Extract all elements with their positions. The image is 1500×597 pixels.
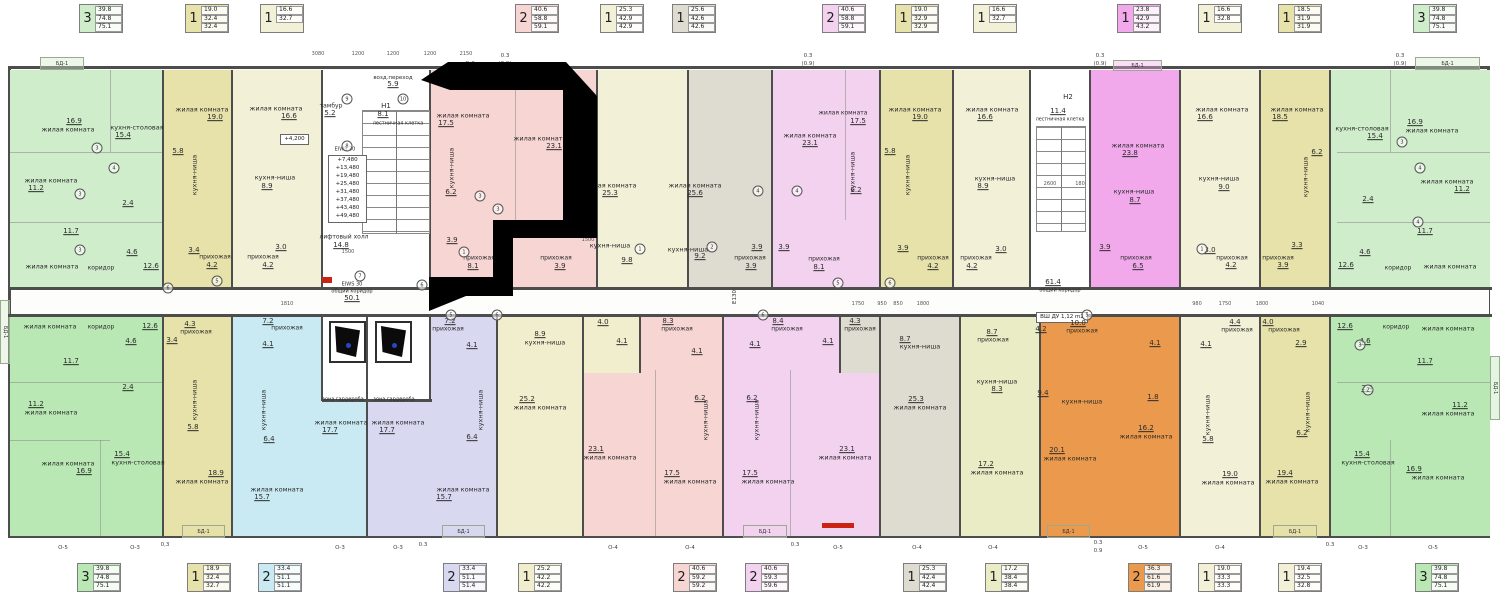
legend-room-count: 1: [519, 564, 534, 591]
room-label: кухня-ниша: [1304, 392, 1311, 433]
legend-area-value: 32.7: [203, 582, 230, 591]
offset-tag: (0.9): [801, 61, 814, 67]
opening-tag: О-3: [335, 545, 345, 551]
legend-area-value: 42.9: [616, 23, 643, 32]
opening-tag: О-3: [1358, 545, 1368, 551]
stair-flight-icon: [1036, 126, 1086, 232]
area-value: 5.8: [1202, 436, 1213, 444]
balcony: БД-1: [743, 525, 787, 538]
legend-area-value: 38.4: [1001, 574, 1028, 583]
area-value: 16.6: [281, 113, 297, 121]
area-value: 3.9: [745, 263, 756, 271]
keynote-circle: 4: [1413, 217, 1424, 228]
room-label: жилая комната: [1423, 263, 1476, 270]
partition-wall: [655, 370, 656, 536]
legend-area-value: 40.6: [838, 6, 865, 15]
area-value: 4.0: [1262, 319, 1273, 327]
area-value: 11.7: [63, 228, 79, 236]
balcony: БД-1: [1490, 356, 1500, 420]
area-value: 15.7: [436, 494, 452, 502]
keynote-circle: 3: [75, 245, 86, 256]
legend-area-value: 58.8: [531, 15, 558, 24]
wall: [231, 70, 233, 290]
legend-area-value: 32.9: [911, 15, 938, 24]
room-label: жилая комната: [663, 478, 716, 485]
room-label: жилая комната: [1043, 455, 1096, 462]
legend-areas: 33.451.151.1: [274, 564, 301, 591]
opening-tag: О-5: [58, 545, 68, 551]
keynote-circle: 8: [342, 141, 353, 152]
legend-areas: 39.874.875.1: [1431, 564, 1458, 591]
area-value: 4.2: [927, 263, 938, 271]
room-label: зона гардероба: [373, 397, 414, 403]
legend-area-value: 19.0: [1214, 565, 1241, 574]
legend-room-count: 2: [259, 564, 274, 591]
room-label: общий коридор: [1039, 288, 1080, 294]
keynote-circle: 5: [833, 278, 844, 289]
area-value: 4.1: [616, 338, 627, 346]
legend-area-value: 19.0: [911, 6, 938, 15]
legend-area-value: 16.6: [1214, 6, 1241, 15]
legend-area-value: 51.4: [459, 582, 486, 591]
area-value: 1.8: [1147, 394, 1158, 402]
offset-tag: 0.3: [419, 542, 428, 548]
legend-room-count: 2: [516, 5, 531, 32]
room-label: кухня-ниша: [590, 242, 631, 249]
balcony: БД-1: [1415, 57, 1480, 70]
legend-areas: 19.032.432.4: [201, 5, 228, 32]
area-value: 4.4: [1229, 319, 1240, 327]
opening-tag: О-4: [608, 545, 618, 551]
area-value: 8.7: [1129, 197, 1140, 205]
area-value: 2.4: [122, 200, 133, 208]
legend-area-value: 38.4: [1001, 582, 1028, 591]
area-value: 6.2: [1311, 149, 1322, 157]
wall: [231, 316, 233, 536]
legend-area-value: 25.3: [919, 565, 946, 574]
wall: [582, 316, 584, 536]
room-label: жилая комната: [1265, 478, 1318, 485]
legend-unit-1-room: 116.632.7: [260, 4, 304, 33]
partition-wall: [10, 152, 163, 153]
legend-area-value: 59.1: [531, 23, 558, 32]
area-value: 5.9: [387, 81, 398, 89]
legend-room-count: 1: [1199, 564, 1214, 591]
area-value: 4.3: [184, 321, 195, 329]
area-value: 6.2: [746, 395, 757, 403]
area-value: 19.0: [207, 114, 223, 122]
legend-areas: 19.033.333.3: [1214, 564, 1241, 591]
apartment-b10: [960, 317, 1040, 536]
opening-tag: О-4: [1215, 545, 1225, 551]
area-value: 12.6: [142, 323, 158, 331]
wall: [879, 316, 881, 536]
legend-area-value: 42.9: [1133, 15, 1160, 24]
legend-areas: 19.432.532.8: [1294, 564, 1321, 591]
area-value: 15.4: [115, 132, 131, 140]
legend-area-value: 32.4: [201, 15, 228, 24]
area-value: 6.4: [263, 436, 274, 444]
elevator-icon: [375, 321, 412, 363]
area-value: 15.4: [1367, 133, 1383, 141]
partition-wall: [515, 90, 516, 220]
area-value: 4.1: [262, 341, 273, 349]
legend-room-count: 1: [673, 5, 688, 32]
legend-unit-2-room: 240.659.359.6: [745, 563, 789, 592]
legend-areas: 40.658.859.1: [531, 5, 558, 32]
room-label: прихожая: [271, 326, 303, 333]
area-value: 4.1: [466, 342, 477, 350]
balcony: БД-1: [182, 525, 225, 538]
legend-areas: 16.632.7: [276, 5, 303, 32]
legend-area-value: 42.4: [919, 582, 946, 591]
legend-areas: 18.531.931.9: [1294, 5, 1321, 32]
area-value: 4.2: [1225, 262, 1236, 270]
room-label: прихожая: [180, 330, 212, 337]
legend-area-value: 51.1: [274, 574, 301, 583]
area-value: 4.6: [126, 249, 137, 257]
dim-label: 1200: [352, 51, 365, 57]
legend-area-value: 42.4: [919, 574, 946, 583]
area-value: 17.5: [438, 120, 454, 128]
apartment-b6: [497, 317, 583, 536]
room-label: жилая комната: [41, 126, 94, 133]
dim-label: 3080: [312, 51, 325, 57]
keynote-circle: 3: [92, 143, 103, 154]
area-value: 11.7: [1417, 228, 1433, 236]
area-value: 3.3: [1291, 242, 1302, 250]
offset-tag: (0.9): [1393, 61, 1406, 67]
legend-area-value: 59.1: [838, 23, 865, 32]
keynote-circle: 3: [75, 189, 86, 200]
room-label: EIWS 30: [342, 282, 363, 288]
offset-tag: 0.3: [1326, 542, 1335, 548]
legend-areas: 39.874.875.1: [1429, 5, 1456, 32]
legend-area-value: 16.6: [276, 6, 303, 15]
area-value: 23.1: [802, 140, 818, 148]
room-label: кухня-ниша: [1062, 398, 1103, 405]
area-value: 9.2: [694, 253, 705, 261]
legend-areas: 19.032.932.9: [911, 5, 938, 32]
offset-tag: (0.9): [498, 61, 511, 67]
room-label: жилая комната: [1119, 433, 1172, 440]
legend-room-count: 1: [601, 5, 616, 32]
legend-unit-1-room: 123.842.943.2: [1117, 4, 1161, 33]
area-value: 18.5: [1272, 114, 1288, 122]
legend-area-value: 61.6: [1144, 574, 1171, 583]
offset-tag: 0,3: [161, 542, 170, 548]
keynote-circle: 1: [1197, 244, 1208, 255]
area-value: 5.2: [324, 110, 335, 118]
room-label: коридор: [1385, 266, 1412, 273]
area-value: 8.9: [977, 183, 988, 191]
keynote-circle: 6: [885, 278, 896, 289]
area-value: 25.3: [602, 190, 618, 198]
area-value: 2.9: [1295, 340, 1306, 348]
legend-unit-2-room: 233.451.151.1: [258, 563, 302, 592]
dim-label: 180: [1075, 181, 1085, 187]
room-label: жилая комната: [1201, 479, 1254, 486]
legend-area-value: 75.1: [95, 23, 122, 32]
area-value: 3.9: [1277, 262, 1288, 270]
legend-area-value: 31.9: [1294, 23, 1321, 32]
keynote-circle: 3: [475, 191, 486, 202]
area-value: 3.9: [554, 263, 565, 271]
area-value: 6.2: [694, 395, 705, 403]
room-label: прихожая: [432, 327, 464, 334]
wall: [429, 317, 431, 401]
room-label: кухня-ниша: [904, 155, 911, 196]
area-value: 3.0: [275, 244, 286, 252]
legend-areas: 23.842.943.2: [1133, 5, 1160, 32]
room-label: жилая комната: [741, 478, 794, 485]
legend-room-count: 1: [974, 5, 989, 32]
room-label: коридор: [88, 266, 115, 273]
legend-area-value: 32.8: [1214, 15, 1241, 24]
keynote-circle: 6: [417, 280, 428, 291]
wall: [687, 70, 689, 290]
legend-area-value: 43.2: [1133, 23, 1160, 32]
legend-unit-1-room: 125.642.642.6: [672, 4, 716, 33]
legend-area-value: 74.8: [1431, 574, 1458, 583]
room-label: H2: [1063, 94, 1073, 102]
room-label: кухня-ниша: [702, 400, 709, 441]
legend-area-value: 36.3: [1144, 565, 1171, 574]
keynote-circle: 5: [212, 276, 223, 287]
legend-unit-3-room: 339.874.875.1: [79, 4, 123, 33]
offset-tag: (0.9): [1093, 61, 1106, 67]
room-label: кухня-столовая: [1341, 459, 1394, 466]
area-value: 15.7: [254, 494, 270, 502]
area-value: 16.6: [977, 114, 993, 122]
partition-wall: [10, 440, 110, 441]
legend-area-value: 39.8: [93, 565, 120, 574]
dim-label: 1500: [429, 301, 442, 307]
room-label: кухня-ниша: [191, 380, 198, 421]
legend-unit-2-room: 236.361.661.9: [1128, 563, 1172, 592]
area-value: 6.2: [850, 187, 861, 195]
room-label: жилая комната: [1405, 127, 1458, 134]
balcony: БД-1: [1047, 525, 1090, 538]
keynote-circle: 9: [342, 94, 353, 105]
wall: [1039, 316, 1041, 536]
legend-areas: 39.874.875.1: [95, 5, 122, 32]
elevator-icon: [329, 321, 366, 363]
legend-unit-1-room: 119.032.932.9: [895, 4, 939, 33]
legend-unit-3-room: 339.874.875.1: [1413, 4, 1457, 33]
opening-tag: О-4: [685, 545, 695, 551]
dim-label: 980: [1192, 301, 1202, 307]
opening-tag: О-5: [1138, 545, 1148, 551]
offset-tag: 0.3: [804, 53, 813, 59]
legend-area-value: 32.5: [1294, 574, 1321, 583]
legend-area-value: 51.1: [274, 582, 301, 591]
area-value: 9.4: [1037, 390, 1048, 398]
legend-area-value: 32.4: [203, 574, 230, 583]
area-value: 6.2: [1296, 430, 1307, 438]
area-value: 11.7: [63, 358, 79, 366]
room-label: кухня-ниша: [477, 390, 484, 431]
legend-area-value: 32.7: [989, 15, 1016, 24]
dim-label: 1750: [1219, 301, 1232, 307]
area-value: 3.4: [188, 247, 199, 255]
wall: [1329, 316, 1331, 536]
keynote-circle: 5: [1082, 310, 1093, 321]
area-value: 9.8: [621, 257, 632, 265]
area-value: 8.3: [662, 318, 673, 326]
partition-wall: [10, 382, 163, 383]
legend-area-value: 32.7: [276, 15, 303, 24]
keynote-circle: 4: [109, 163, 120, 174]
room-label: жилая комната: [513, 404, 566, 411]
offset-tag: 0.3: [791, 542, 800, 548]
partition-wall: [110, 70, 111, 152]
keynote-circle: 6: [492, 310, 503, 321]
wall: [321, 317, 323, 401]
room-label: жилая комната: [970, 469, 1023, 476]
balcony: БД-1: [1273, 525, 1317, 538]
legend-unit-1-room: 119.032.432.4: [185, 4, 229, 33]
legend-areas: 16.632.8: [1214, 5, 1241, 32]
legend-unit-1-room: 118.531.931.9: [1278, 4, 1322, 33]
legend-areas: 40.658.859.1: [838, 5, 865, 32]
opening-tag: О-4: [912, 545, 922, 551]
room-label: жилая комната: [23, 323, 76, 330]
legend-area-value: 42.9: [616, 15, 643, 24]
room-label: жилая комната: [24, 409, 77, 416]
wall: [839, 317, 841, 373]
area-value: 4.1: [1149, 340, 1160, 348]
legend-area-value: 59.2: [689, 582, 716, 591]
room-label: прихожая: [1268, 328, 1300, 335]
wall: [959, 316, 961, 536]
room-label: кухня-ниша: [1302, 157, 1309, 198]
legend-area-value: 74.8: [93, 574, 120, 583]
legend-area-value: 75.1: [1429, 23, 1456, 32]
dim-label: 1200: [424, 51, 437, 57]
keynote-circle: 7: [355, 271, 366, 282]
wall: [1179, 70, 1181, 290]
dim-label: 1800: [917, 301, 930, 307]
legend-room-count: 1: [1279, 564, 1294, 591]
legend-unit-1-room: 125.342.942.9: [600, 4, 644, 33]
offset-tag: 0.3: [1096, 53, 1105, 59]
room-label: лестничная клетка: [373, 121, 424, 127]
partition-wall: [1337, 382, 1490, 383]
keynote-circle: 1: [459, 247, 470, 258]
legend-area-value: 31.9: [1294, 15, 1321, 24]
area-value: 4.1: [1200, 341, 1211, 349]
legend-area-value: 19.4: [1294, 565, 1321, 574]
area-value: 4.0: [597, 319, 608, 327]
legend-area-value: 25.2: [534, 565, 561, 574]
room-label: жилая комната: [818, 454, 871, 461]
apartment-b13: [1260, 317, 1330, 536]
area-value: 3.9: [751, 244, 762, 252]
area-value: 3.0: [995, 246, 1006, 254]
apartment-b6s: [583, 317, 640, 373]
opening-tag: О-3: [130, 545, 140, 551]
area-value: 4.1: [822, 338, 833, 346]
area-value: 4.2: [206, 262, 217, 270]
legend-unit-2-room: 240.658.859.1: [515, 4, 559, 33]
legend-room-count: 1: [261, 5, 276, 32]
area-value: 8.9: [261, 183, 272, 191]
keynote-circle: 4: [792, 186, 803, 197]
legend-unit-3-room: 339.874.875.1: [1415, 563, 1459, 592]
legend-areas: 25.242.242.2: [534, 564, 561, 591]
area-value: 23.1: [546, 143, 562, 151]
partition-wall: [100, 440, 101, 536]
electrical-panel-mark: [322, 277, 332, 283]
area-value: 16.9: [76, 468, 92, 476]
legend-unit-1-room: 116.632.8: [1198, 4, 1242, 33]
area-value: 17.5: [850, 118, 866, 126]
room-label: прихожая: [977, 338, 1009, 345]
legend-area-value: 42.6: [688, 15, 715, 24]
offset-tag: 0.3: [1094, 540, 1103, 546]
legend-area-value: 75.1: [1431, 582, 1458, 591]
legend-areas: 16.632.7: [989, 5, 1016, 32]
area-value: 3.4: [166, 337, 177, 345]
room-label: кухня-ниша: [1114, 188, 1155, 195]
apartment-b12: [1180, 317, 1260, 536]
legend-area-value: 74.8: [1429, 15, 1456, 24]
dim-label: 1040: [1312, 301, 1325, 307]
wall: [722, 316, 724, 536]
legend-room-count: 2: [746, 564, 761, 591]
stair-flight-icon: [362, 110, 430, 234]
room-label: жилая комната: [175, 478, 228, 485]
dim-label: 1500: [582, 237, 595, 243]
partition-wall: [1337, 152, 1490, 153]
legend-room-count: 1: [904, 564, 919, 591]
area-value: 5.8: [187, 424, 198, 432]
legend-area-value: 40.6: [761, 565, 788, 574]
room-label: кухня-ниша: [1199, 175, 1240, 182]
legend-room-count: 1: [1199, 5, 1214, 32]
offset-tag: 0.3: [501, 53, 510, 59]
legend-room-count: 1: [186, 5, 201, 32]
legend-areas: 25.342.942.9: [616, 5, 643, 32]
legend-area-value: 39.8: [1429, 6, 1456, 15]
area-value: 4.6: [1359, 249, 1370, 257]
keynote-circle: 3: [493, 204, 504, 215]
wall: [771, 70, 773, 290]
opening-tag: О-5: [1428, 545, 1438, 551]
area-value: 6.2: [445, 189, 456, 197]
area-value: 9.0: [1218, 184, 1229, 192]
area-value: 50.1: [344, 295, 360, 303]
area-value: 8.1: [813, 264, 824, 272]
area-value: 3.9: [1099, 244, 1110, 252]
area-value: 12.6: [1337, 323, 1353, 331]
room-label: прихожая: [1066, 329, 1098, 336]
opening-tag: О-4: [988, 545, 998, 551]
balcony: БД-1: [40, 57, 84, 70]
elevation-box: +4,200: [280, 134, 309, 145]
balcony: БД-1: [442, 525, 485, 538]
area-value: 3.9: [778, 244, 789, 252]
keynote-circle: 4: [753, 186, 764, 197]
room-label: жилая комната: [1411, 474, 1464, 481]
dim-label: 1200: [387, 51, 400, 57]
legend-area-value: 51.1: [459, 574, 486, 583]
wall: [1259, 70, 1261, 290]
dim-label: 1800: [1256, 301, 1269, 307]
room-label: кухня-ниша: [1204, 395, 1211, 436]
area-value: 4.2: [966, 263, 977, 271]
